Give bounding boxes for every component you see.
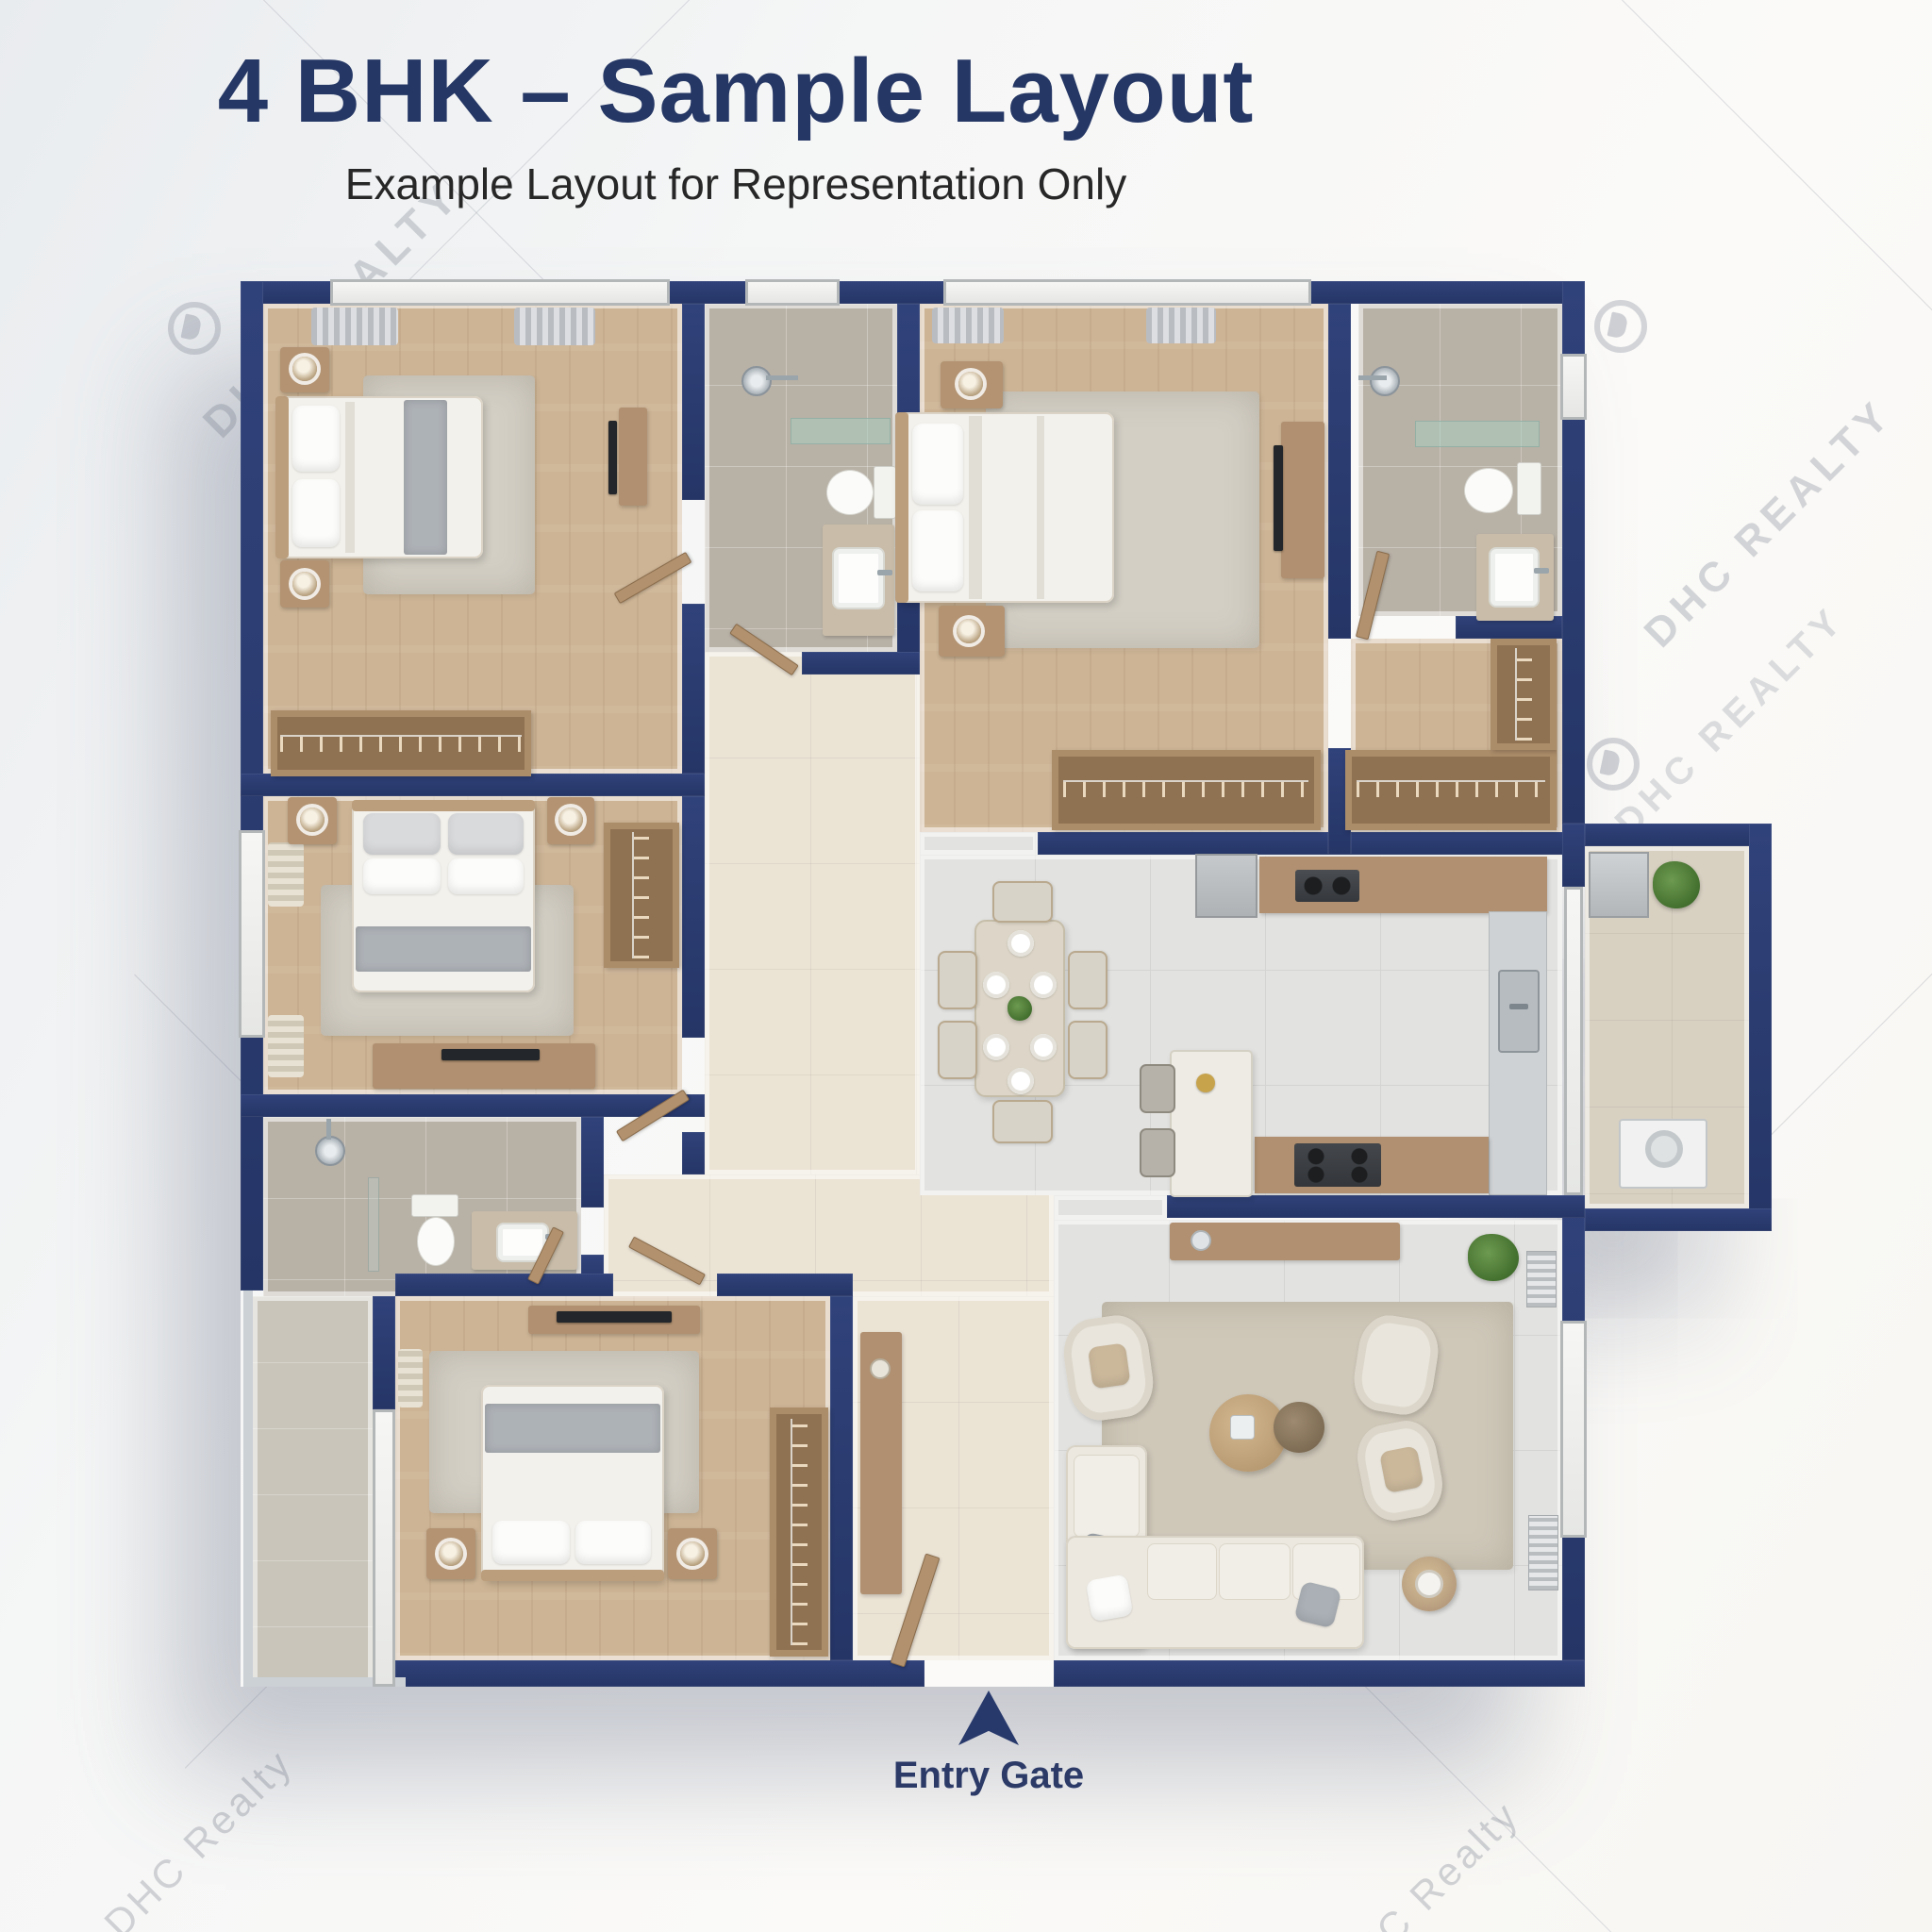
dining-chair — [1068, 951, 1108, 1009]
bed-pillow — [363, 858, 441, 894]
wall-bedroom1-east-b — [682, 604, 705, 774]
bed-pillow — [912, 510, 963, 591]
table-lamp — [300, 808, 325, 832]
window-living-right — [1560, 1321, 1587, 1538]
table-centerpiece — [1008, 996, 1032, 1021]
wall-wing-bottom — [1585, 1208, 1772, 1231]
bedroom-1-tv-console — [619, 408, 647, 506]
kitchen-island — [1170, 1050, 1253, 1197]
sofa-cushion — [1219, 1543, 1291, 1600]
island-decor-gold — [1196, 1074, 1215, 1092]
bed-throw-blanket — [404, 400, 447, 555]
bedroom-2-wardrobe — [604, 823, 679, 968]
page-subtitle: Example Layout for Representation Only — [170, 158, 1302, 209]
bedroom-4-bed — [481, 1385, 664, 1581]
curtain — [1146, 308, 1216, 343]
bed-pillow — [363, 813, 441, 855]
window-bedroom-1 — [330, 279, 670, 306]
bed-pillow — [292, 406, 340, 472]
toilet-bowl — [1464, 468, 1513, 513]
dining-chair — [992, 1100, 1053, 1143]
shower-head-icon — [1370, 366, 1400, 396]
wardrobe-rail — [280, 735, 522, 752]
curtain — [932, 308, 1004, 343]
dining-chair — [938, 1021, 977, 1079]
sideboard-decor — [1191, 1230, 1211, 1251]
wall-wing-right — [1749, 824, 1772, 1231]
sofa-main — [1066, 1536, 1364, 1649]
shower-arm — [1358, 375, 1387, 380]
table-lamp — [439, 1541, 463, 1566]
page-title: 4 BHK – Sample Layout — [170, 40, 1302, 143]
table-lamp — [680, 1541, 705, 1566]
wall-bedroom4-north-b — [717, 1274, 853, 1296]
watermark-text: DHC REALTY — [1607, 598, 1854, 844]
wall-bedroom2-south — [241, 1094, 705, 1117]
bar-stool — [1140, 1128, 1175, 1177]
sofa-pillow — [1294, 1581, 1342, 1629]
dressing-wardrobe-column — [1491, 639, 1557, 750]
wall-bathroom3-east-a — [581, 1117, 604, 1207]
bedroom-4-tv — [557, 1311, 672, 1323]
dining-chair — [938, 951, 977, 1009]
floor-lamp-shade — [1415, 1570, 1443, 1598]
wall-bedroom2-east-a — [682, 796, 705, 1038]
dhc-logo-icon — [1594, 300, 1647, 353]
curtain — [311, 308, 398, 345]
bedroom-1-wardrobe — [271, 710, 531, 776]
balcony-railing-left — [243, 1291, 253, 1687]
kitchen-hob-4burner — [1294, 1143, 1381, 1187]
curtain — [398, 1349, 423, 1407]
window-bathroom-1 — [745, 279, 840, 306]
table-lamp — [292, 572, 317, 596]
shower-arm — [326, 1119, 331, 1140]
kitchen-sink — [1498, 970, 1540, 1053]
shower-head-icon — [741, 366, 772, 396]
dinner-plate — [1008, 1068, 1034, 1094]
watermark-text: DHC Realty — [1322, 1791, 1528, 1932]
wall-bedroom4-north-a — [395, 1274, 613, 1296]
sofa-cushion — [1074, 1455, 1140, 1538]
toilet-bowl — [417, 1217, 455, 1266]
dhc-logo-icon — [168, 302, 221, 355]
dinner-plate — [1030, 972, 1057, 998]
kitchen-counter-right — [1489, 911, 1547, 1195]
dinner-plate — [983, 972, 1009, 998]
table-lamp — [558, 808, 583, 832]
bathroom-2-sink — [1489, 547, 1540, 608]
wall-bathroom1-south — [802, 652, 920, 675]
living-connector-floor — [1054, 1195, 1167, 1220]
bedroom-2-bed — [352, 800, 535, 992]
dinner-plate — [1008, 930, 1034, 957]
bedroom-1-tv — [608, 421, 617, 494]
wall-kitchen-wing-stub — [1562, 824, 1585, 887]
bed-headboard — [275, 396, 289, 558]
kitchen-hob-2burner — [1295, 870, 1359, 902]
wall-master-south-b — [1351, 832, 1585, 855]
window-bedroom-4-balcony — [373, 1409, 395, 1687]
wall-master-south-a — [1038, 832, 1328, 855]
bedroom-4-balcony-floor — [253, 1296, 373, 1687]
bed-headboard — [895, 412, 908, 603]
bed-pillow — [912, 424, 963, 505]
table-lamp — [957, 619, 981, 643]
radiator-panel — [1528, 1515, 1558, 1591]
shower-glass-panel — [368, 1177, 379, 1272]
wall-bedroom4-east — [830, 1296, 853, 1660]
wardrobe-rail — [791, 1419, 808, 1645]
bedroom-2-tv — [441, 1049, 540, 1060]
bed-sheet-fold — [345, 402, 355, 553]
watermark-text: DHC REALTY — [1636, 390, 1903, 657]
entry-gate-label: Entry Gate — [847, 1755, 1130, 1797]
wardrobe-rail — [1357, 780, 1545, 797]
master-tv — [1274, 445, 1283, 551]
window-bedroom-2-left — [239, 830, 265, 1038]
armchair-pillow — [1379, 1445, 1424, 1493]
dining-chair — [1068, 1021, 1108, 1079]
toilet-tank — [874, 466, 896, 519]
bedroom-4-wardrobe — [770, 1407, 828, 1657]
wall-bottom-right — [1054, 1660, 1585, 1687]
window-master-bedroom — [943, 279, 1311, 306]
bed-sheet-fold — [969, 416, 982, 599]
glass-shelf — [1415, 421, 1540, 447]
entry-arrow-icon — [958, 1690, 1019, 1745]
curtain — [268, 1015, 304, 1077]
dhc-logo-icon — [1587, 738, 1640, 791]
shower-arm — [766, 375, 798, 380]
glass-shelf — [791, 418, 891, 444]
bed-pillow — [448, 858, 524, 894]
master-entry-patch — [920, 832, 1038, 855]
bed-headboard — [481, 1570, 664, 1581]
dressing-wardrobe-right — [1345, 750, 1557, 830]
kitchen-sink-faucet — [1509, 1004, 1528, 1009]
radiator-panel — [1526, 1251, 1557, 1307]
wardrobe-rail — [632, 832, 649, 958]
master-tv-unit — [1281, 422, 1324, 578]
master-bedroom-bed — [895, 412, 1114, 603]
wall-wing-top — [1585, 824, 1772, 846]
watermark-text: DHC Realty — [95, 1740, 302, 1932]
bathroom-1-sink — [832, 547, 885, 609]
bed-headboard — [352, 800, 535, 811]
window-kitchen-wing — [1564, 887, 1583, 1195]
bed-throw-blanket — [356, 926, 531, 972]
window-bathroom-2-duct — [1560, 354, 1587, 420]
potted-plant — [1468, 1234, 1519, 1281]
wall-bedroom1-east-a — [682, 304, 705, 500]
sofa-pillow — [1086, 1574, 1134, 1623]
dinner-plate — [1030, 1034, 1057, 1060]
toilet-tank — [411, 1194, 458, 1217]
bed-sheet-fold — [1037, 416, 1044, 599]
dining-chair — [992, 881, 1053, 923]
bed-pillow — [292, 479, 340, 547]
table-lamp — [958, 372, 983, 396]
armchair-pillow — [1088, 1342, 1131, 1389]
bed-throw-blanket — [485, 1404, 660, 1453]
bar-stool — [1140, 1064, 1175, 1113]
faucet-icon — [1534, 568, 1549, 574]
wardrobe-rail — [1515, 648, 1532, 741]
foyer-console-decor — [870, 1358, 891, 1379]
coffee-table-small — [1274, 1402, 1324, 1453]
washing-machine-door — [1645, 1130, 1683, 1168]
table-lamp — [292, 357, 317, 381]
dressing-wardrobe-left — [1052, 750, 1321, 830]
potted-plant — [1653, 861, 1700, 908]
toilet-bowl — [826, 470, 874, 515]
toilet-tank — [1517, 462, 1541, 515]
dinner-plate — [983, 1034, 1009, 1060]
floorplan-page: DHC REALTY DHC REALTY DHC REALTY DHC Rea… — [0, 0, 1932, 1932]
wardrobe-rail — [1063, 780, 1308, 797]
fridge — [1195, 854, 1257, 918]
curtain — [514, 308, 595, 345]
wall-master-east — [1328, 304, 1351, 639]
wall-bedroom2-east-b — [682, 1132, 705, 1174]
shower-head-icon — [315, 1136, 345, 1166]
wall-kitchen-south — [1167, 1195, 1585, 1218]
wall-balcony4-divider — [373, 1296, 395, 1409]
sofa-cushion — [1147, 1543, 1217, 1600]
bedroom-1-bed — [275, 396, 483, 558]
water-heater — [1589, 852, 1649, 918]
bed-pillow — [575, 1521, 651, 1564]
wall-bedroom1-bedroom2 — [241, 774, 705, 796]
coffee-table-decor — [1230, 1415, 1255, 1440]
faucet-icon — [877, 570, 892, 575]
corridor-floor — [705, 652, 920, 1174]
wall-bottom-left — [395, 1660, 924, 1687]
bed-pillow — [492, 1521, 570, 1564]
curtain — [268, 842, 304, 907]
bed-pillow — [448, 813, 524, 855]
